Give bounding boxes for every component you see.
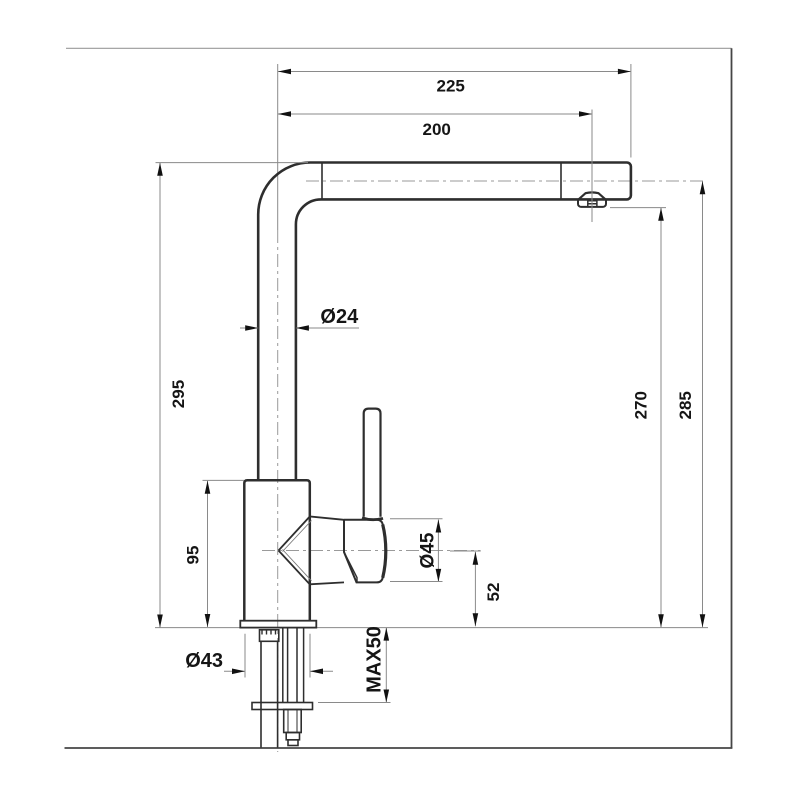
svg-text:95: 95 (184, 546, 203, 565)
svg-text:MAX50: MAX50 (364, 626, 386, 693)
svg-text:Ø45: Ø45 (418, 532, 439, 568)
svg-text:Ø24: Ø24 (320, 306, 359, 328)
svg-text:Ø43: Ø43 (185, 650, 223, 672)
svg-text:285: 285 (676, 391, 695, 419)
svg-text:200: 200 (423, 120, 451, 139)
svg-text:225: 225 (437, 77, 465, 96)
svg-text:52: 52 (484, 583, 503, 602)
svg-text:270: 270 (631, 391, 650, 419)
svg-text:295: 295 (169, 380, 188, 408)
